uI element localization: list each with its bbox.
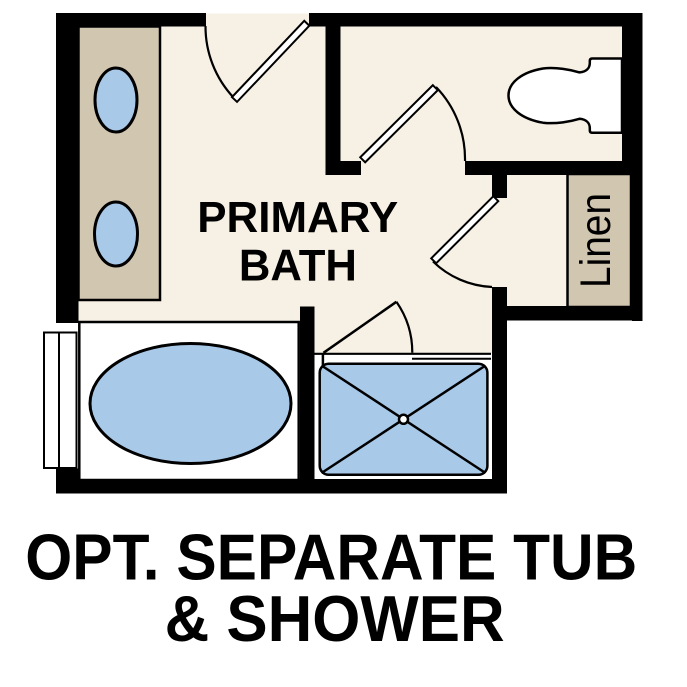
svg-text:BATH: BATH [239,241,357,290]
svg-text:& SHOWER: & SHOWER [165,582,505,655]
svg-text:Linen: Linen [572,193,620,288]
svg-text:PRIMARY: PRIMARY [197,193,398,242]
